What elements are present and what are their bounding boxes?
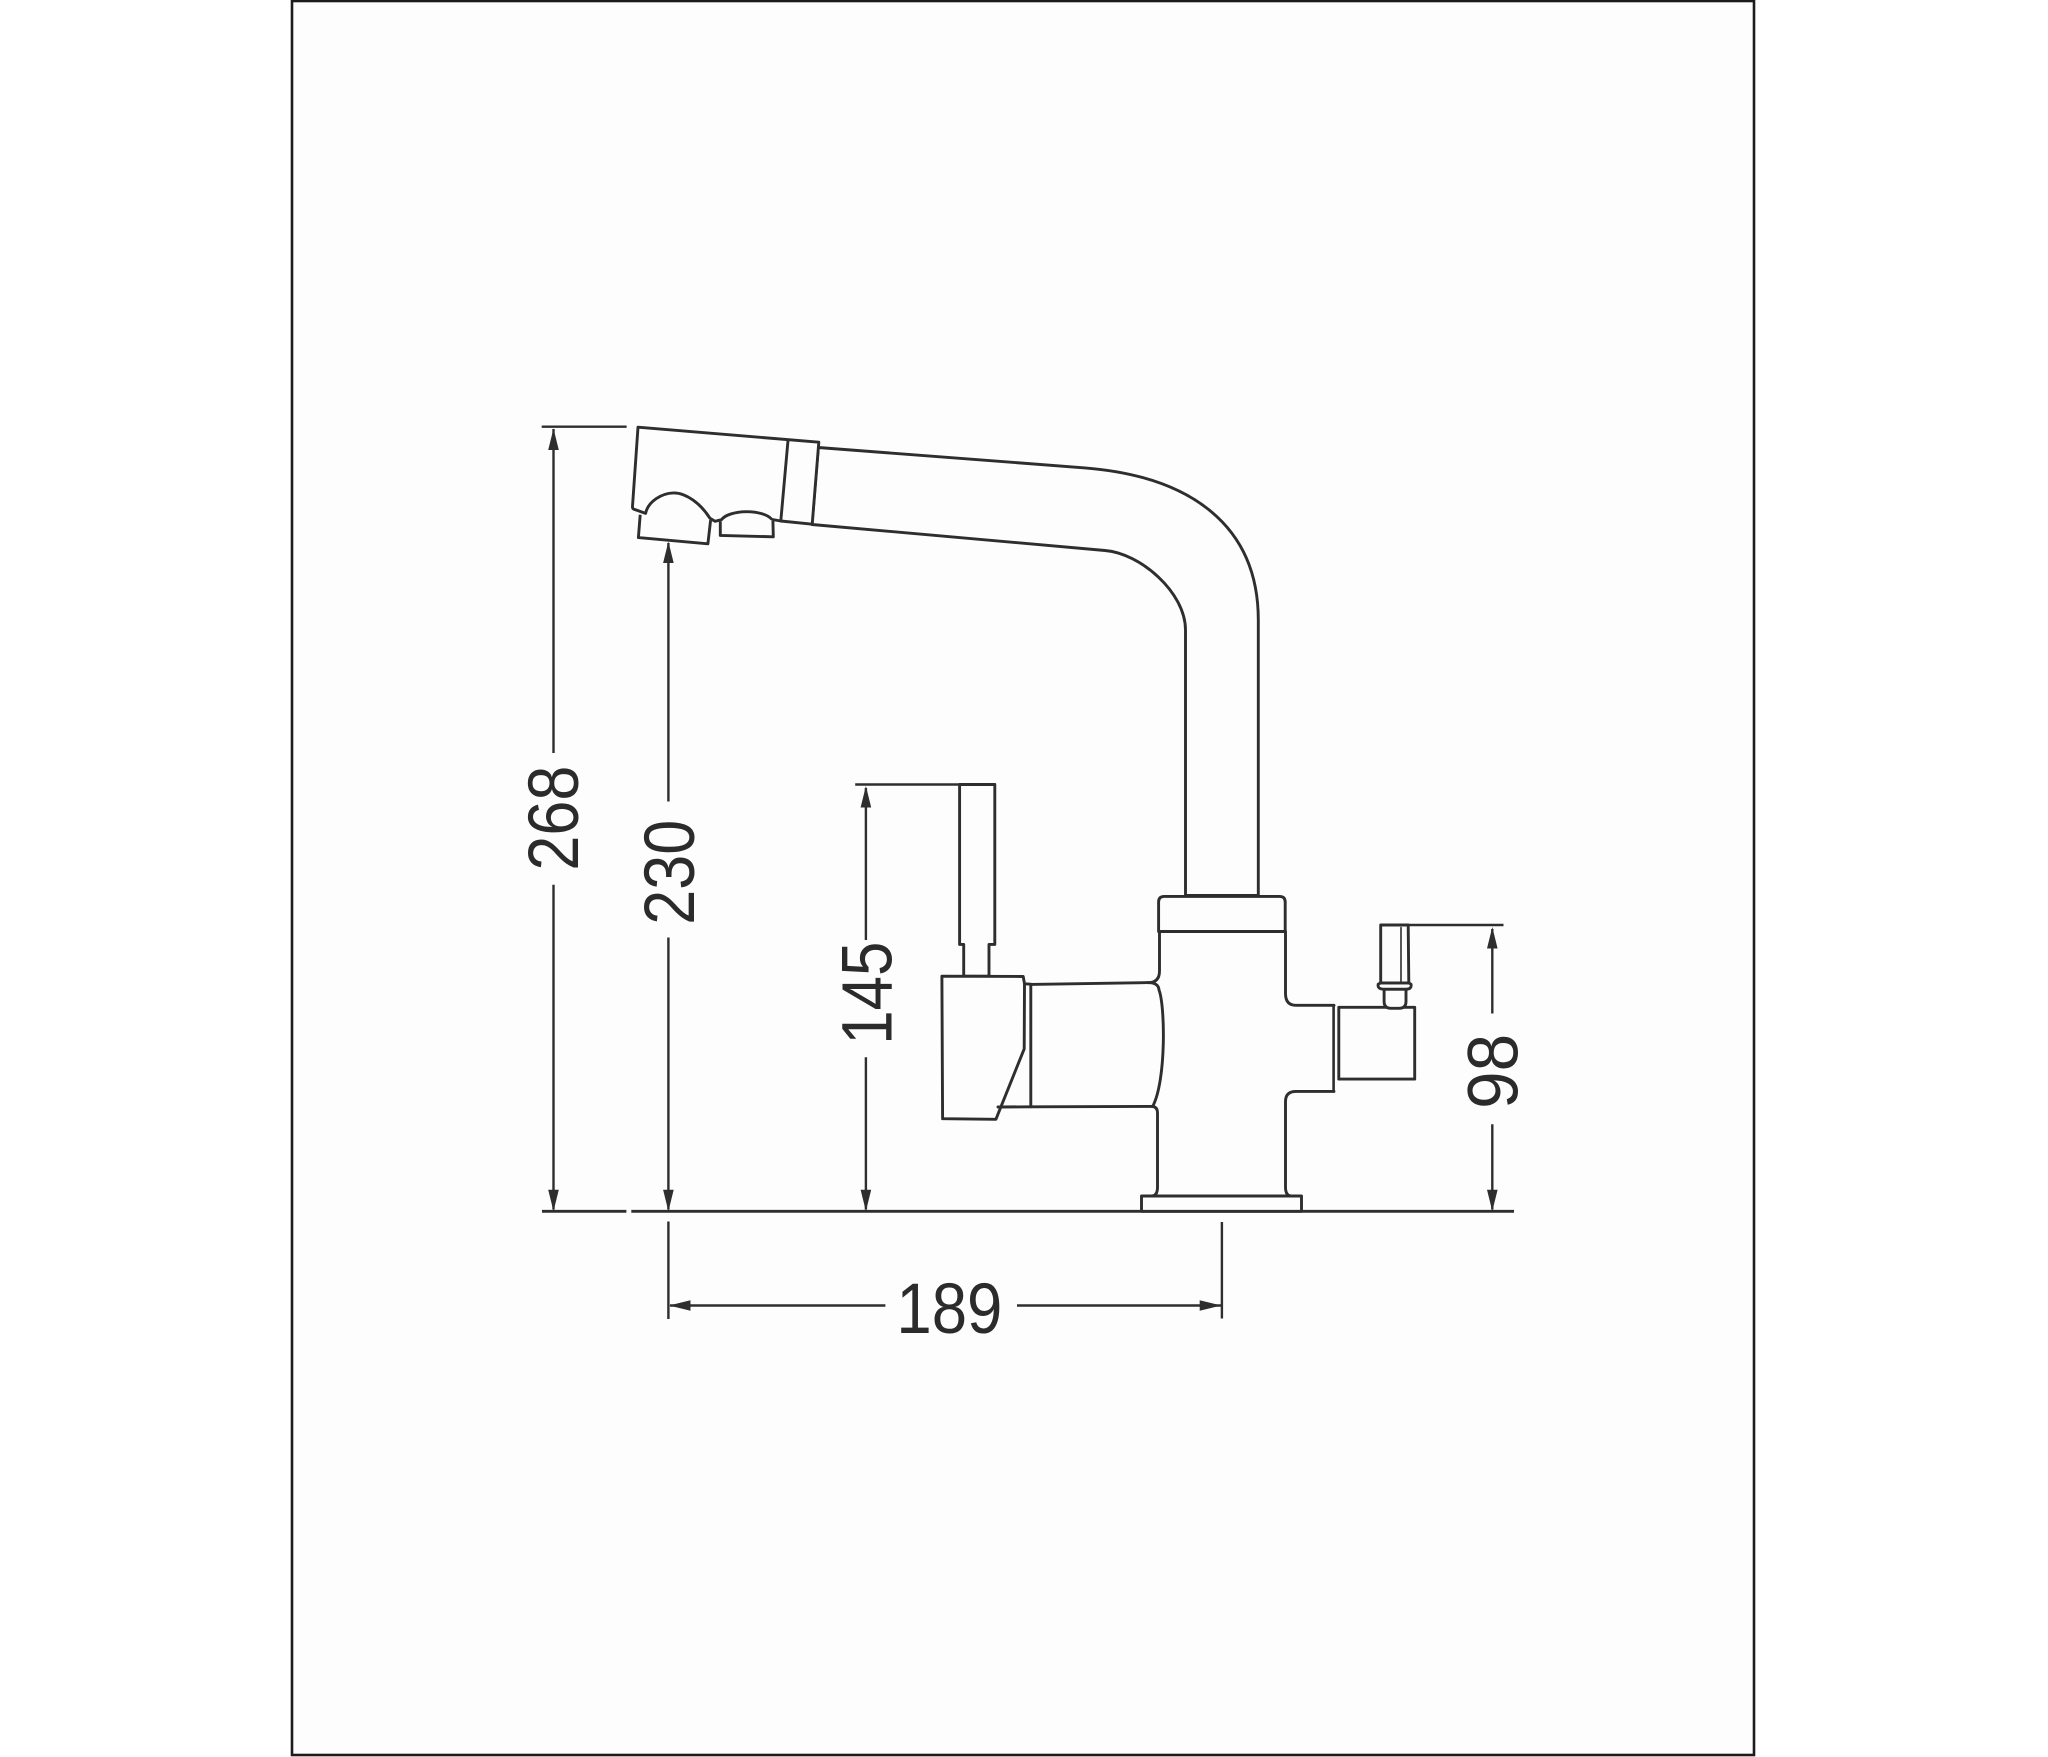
svg-text:98: 98 [1454,1034,1533,1109]
svg-text:230: 230 [631,820,710,925]
svg-text:145: 145 [828,942,907,1045]
svg-text:268: 268 [515,766,594,871]
svg-text:189: 189 [896,1270,1002,1349]
